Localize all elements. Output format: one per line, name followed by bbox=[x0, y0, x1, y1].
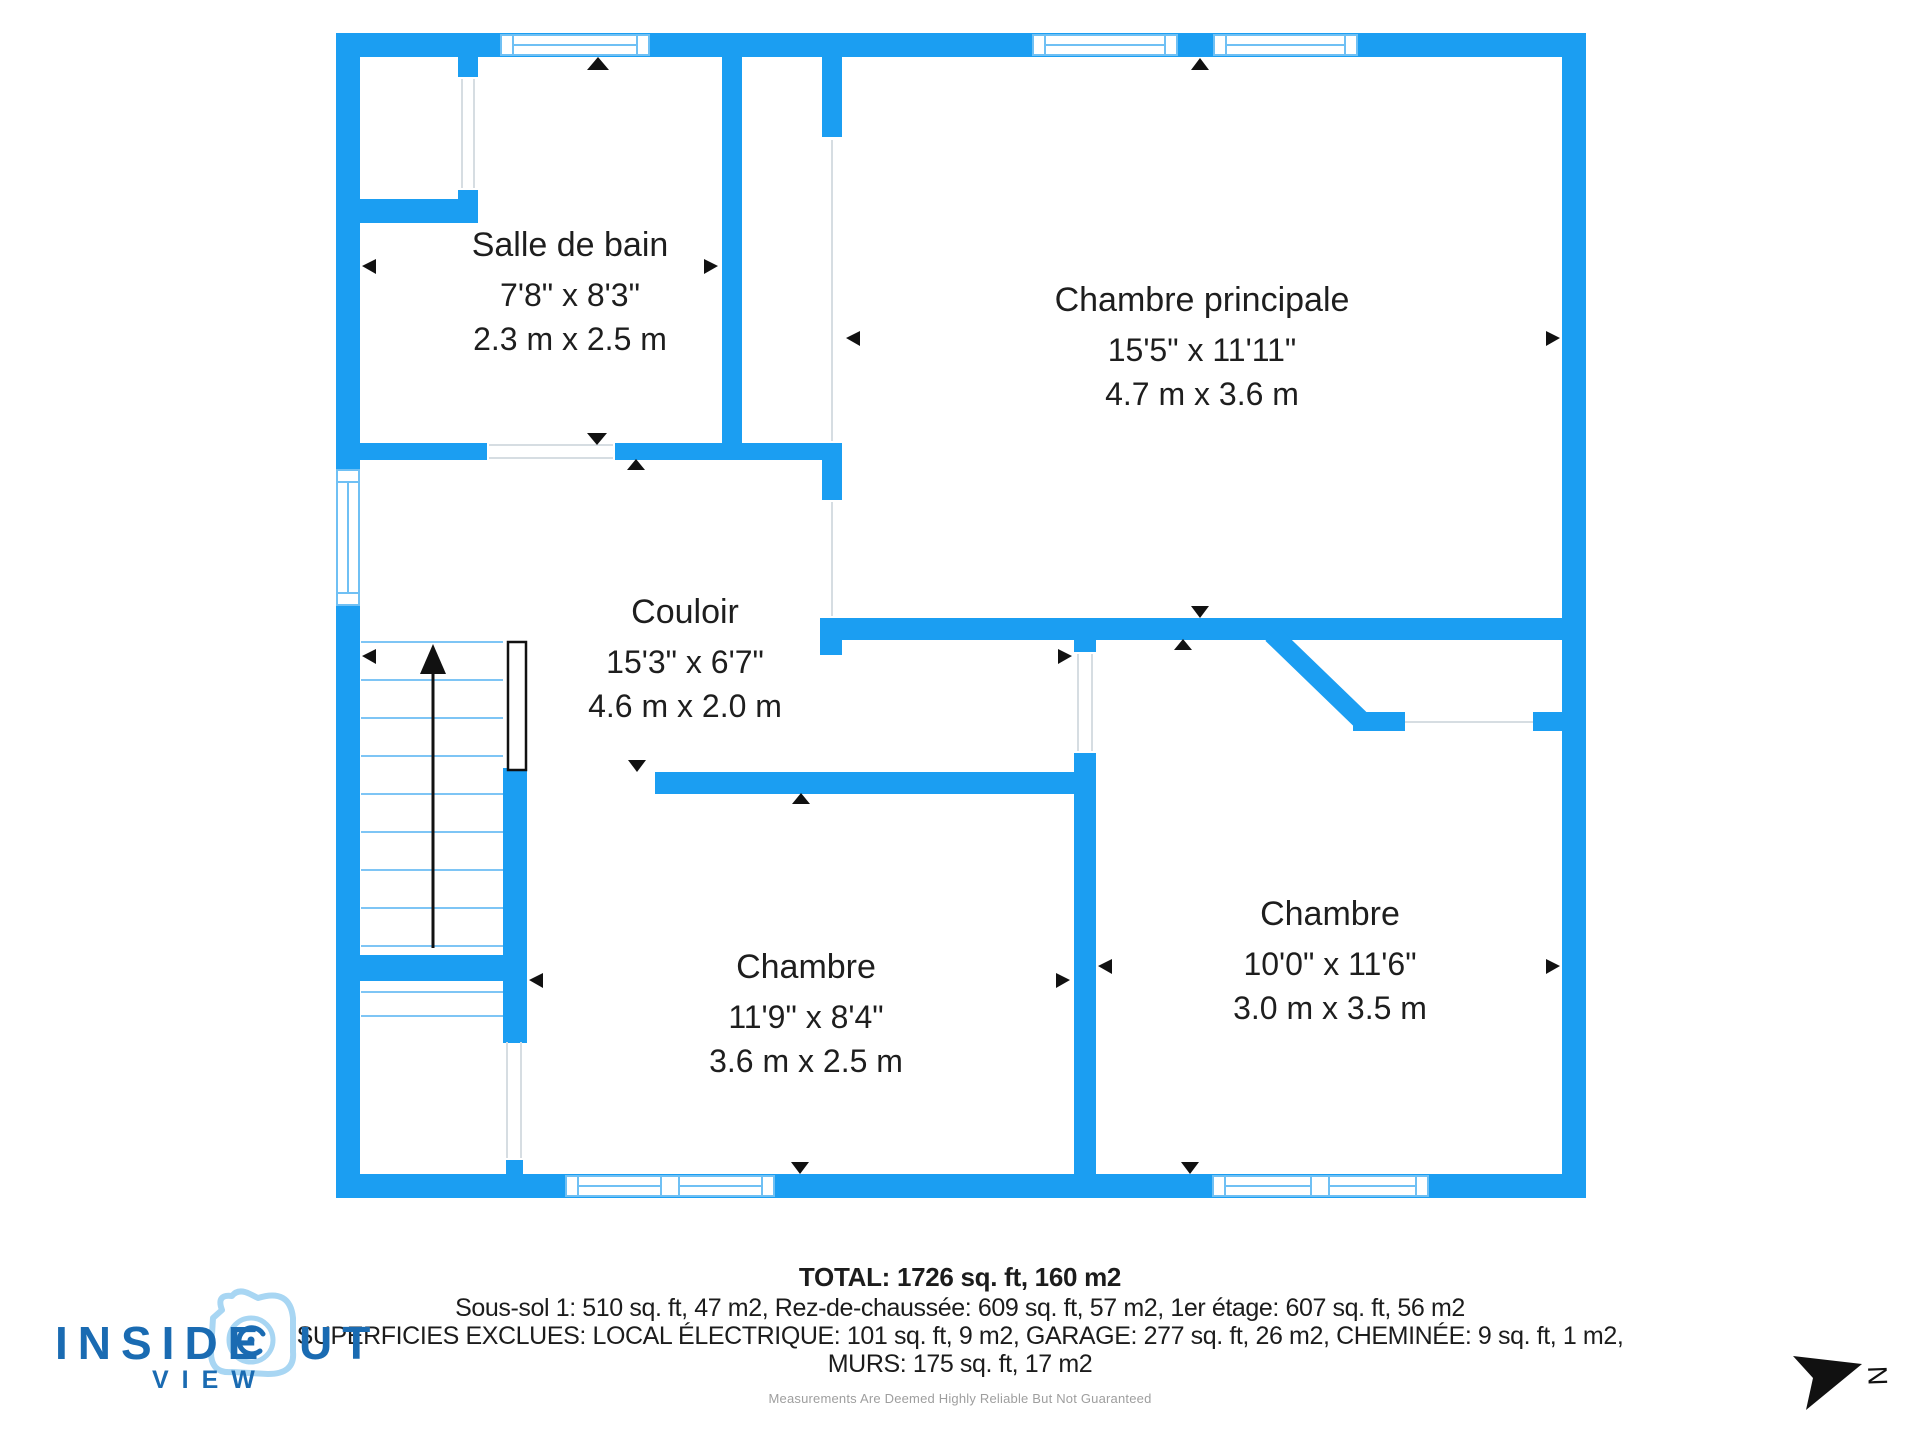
wall-bath-closet bbox=[360, 199, 458, 223]
footer-excluded: SUPERFICIES EXCLUES: LOCAL ÉLECTRIQUE: 1… bbox=[0, 1322, 1920, 1351]
wall-master-bottom-cap bbox=[820, 618, 842, 655]
room-label-bedroom2: Chambre 10'0" x 11'6" 3.0 m x 3.5 m bbox=[1233, 897, 1427, 1036]
measure-left-bath bbox=[362, 259, 376, 274]
wall-bath-closet-stub bbox=[458, 190, 478, 223]
room-size-imperial: 15'3" x 6'7" bbox=[588, 646, 782, 678]
window-left-hall bbox=[337, 470, 359, 605]
wall-bedroom-divider bbox=[1074, 753, 1096, 1174]
room-label-master: Chambre principale 15'5" x 11'11" 4.7 m … bbox=[1055, 283, 1350, 422]
wall-hall-bottom bbox=[655, 772, 1096, 794]
wall-bath-bottom-right bbox=[615, 443, 842, 460]
stair-direction-arrow-head bbox=[420, 644, 446, 674]
room-name: Chambre principale bbox=[1055, 283, 1350, 317]
room-size-metric: 4.7 m x 3.6 m bbox=[1055, 378, 1350, 410]
floor-plan-drawing: N bbox=[0, 0, 1920, 1440]
wall-outer-right bbox=[1562, 33, 1586, 1198]
footer-walls: MURS: 175 sq. ft, 17 m2 bbox=[0, 1350, 1920, 1379]
marker-up-bath-top bbox=[587, 57, 609, 70]
wall-stairs-door-stub bbox=[506, 1160, 523, 1174]
marker-down-hall-bottom bbox=[628, 760, 646, 772]
logo-text-ut: UT bbox=[299, 1316, 380, 1370]
room-name: Chambre bbox=[1233, 897, 1427, 931]
measure-left-bedroom2 bbox=[1098, 959, 1112, 974]
wall-closet-lower-right bbox=[1533, 712, 1562, 731]
marker-down-bath-door bbox=[587, 433, 607, 445]
measure-right-hall bbox=[1058, 649, 1072, 664]
room-label-bedroom1: Chambre 11'9" x 8'4" 3.6 m x 2.5 m bbox=[709, 950, 903, 1089]
window-top-master-left bbox=[1033, 35, 1177, 55]
room-label-hall: Couloir 15'3" x 6'7" 4.6 m x 2.0 m bbox=[588, 595, 782, 734]
marker-up-hall-top bbox=[627, 459, 645, 470]
footer-total: TOTAL: 1726 sq. ft, 160 m2 bbox=[0, 1262, 1920, 1293]
room-size-imperial: 7'8" x 8'3" bbox=[472, 279, 669, 311]
window-bottom-left-bedroom bbox=[566, 1176, 774, 1196]
measure-left-bedroom1 bbox=[529, 973, 543, 988]
marker-down-master-bottom bbox=[1191, 606, 1209, 618]
wall-bath-right bbox=[722, 57, 742, 443]
measure-left-hall bbox=[362, 649, 376, 664]
room-size-metric: 4.6 m x 2.0 m bbox=[588, 690, 782, 722]
wall-diagonal bbox=[1272, 634, 1362, 721]
marker-down-bedroom1-bottom bbox=[791, 1162, 809, 1174]
marker-up-bedroom1-top bbox=[792, 793, 810, 804]
room-size-imperial: 10'0" x 11'6" bbox=[1233, 948, 1427, 980]
logo-text-inside: INSIDE bbox=[55, 1316, 268, 1370]
window-bottom-right-bedroom bbox=[1213, 1176, 1428, 1196]
wall-bedroom-divider-stub bbox=[1074, 640, 1096, 652]
wall-master-entry-mid bbox=[822, 460, 842, 500]
wall-stairs-right bbox=[503, 768, 527, 1043]
wall-closet-stub-top bbox=[458, 57, 478, 77]
room-size-metric: 3.6 m x 2.5 m bbox=[709, 1045, 903, 1077]
wall-master-entry-top bbox=[822, 57, 842, 137]
room-name: Chambre bbox=[709, 950, 903, 984]
measure-right-bath bbox=[704, 259, 718, 274]
room-size-metric: 3.0 m x 3.5 m bbox=[1233, 992, 1427, 1024]
wall-master-bottom bbox=[820, 618, 1562, 640]
window-top-master-right bbox=[1214, 35, 1357, 55]
stair-rail bbox=[508, 642, 526, 770]
footer-disclaimer: Measurements Are Deemed Highly Reliable … bbox=[0, 1391, 1920, 1406]
logo-text-view: VIEW bbox=[152, 1366, 268, 1395]
measure-left-master bbox=[846, 331, 860, 346]
room-size-imperial: 11'9" x 8'4" bbox=[709, 1001, 903, 1033]
wall-stairs-landing bbox=[360, 955, 508, 981]
floor-plan-page: N Salle de bain 7'8" x 8'3" 2.3 m x 2.5 … bbox=[0, 0, 1920, 1440]
room-name: Couloir bbox=[588, 595, 782, 629]
marker-down-bedroom2-bottom bbox=[1181, 1162, 1199, 1174]
measure-right-master bbox=[1546, 331, 1560, 346]
footer-levels: Sous-sol 1: 510 sq. ft, 47 m2, Rez-de-ch… bbox=[0, 1294, 1920, 1323]
measure-right-bedroom1 bbox=[1056, 973, 1070, 988]
wall-outer-left bbox=[336, 33, 360, 1198]
room-name: Salle de bain bbox=[472, 228, 669, 262]
room-size-imperial: 15'5" x 11'11" bbox=[1055, 334, 1350, 366]
marker-up-master-top bbox=[1191, 58, 1209, 70]
measure-right-bedroom2 bbox=[1546, 959, 1560, 974]
room-size-metric: 2.3 m x 2.5 m bbox=[472, 323, 669, 355]
window-top-bath bbox=[501, 35, 649, 55]
room-label-bath: Salle de bain 7'8" x 8'3" 2.3 m x 2.5 m bbox=[472, 228, 669, 367]
marker-up-bedroom2-top bbox=[1174, 639, 1192, 650]
wall-bath-bottom-left bbox=[360, 443, 487, 460]
